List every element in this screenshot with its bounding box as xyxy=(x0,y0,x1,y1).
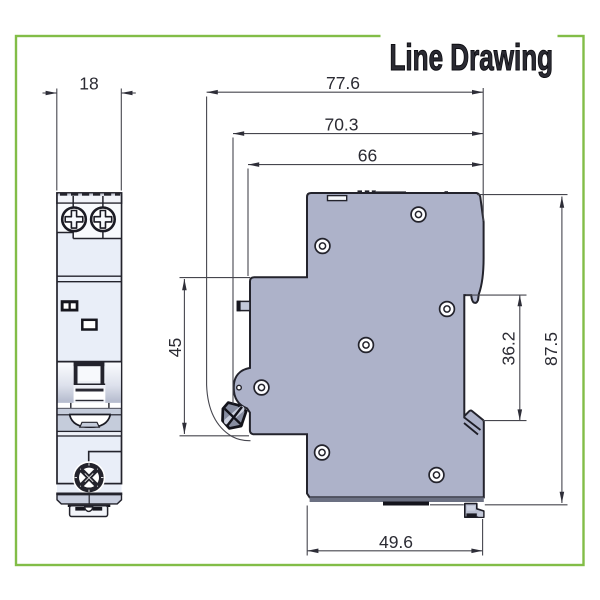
svg-text:87.5: 87.5 xyxy=(541,332,561,366)
svg-text:36.2: 36.2 xyxy=(499,331,519,365)
svg-text:45: 45 xyxy=(165,338,185,357)
svg-text:18: 18 xyxy=(79,74,98,94)
svg-text:70.3: 70.3 xyxy=(324,115,358,135)
svg-text:Line Drawing: Line Drawing xyxy=(390,36,554,78)
svg-text:49.6: 49.6 xyxy=(379,532,413,552)
svg-text:66: 66 xyxy=(358,146,377,166)
svg-text:77.6: 77.6 xyxy=(326,73,360,93)
